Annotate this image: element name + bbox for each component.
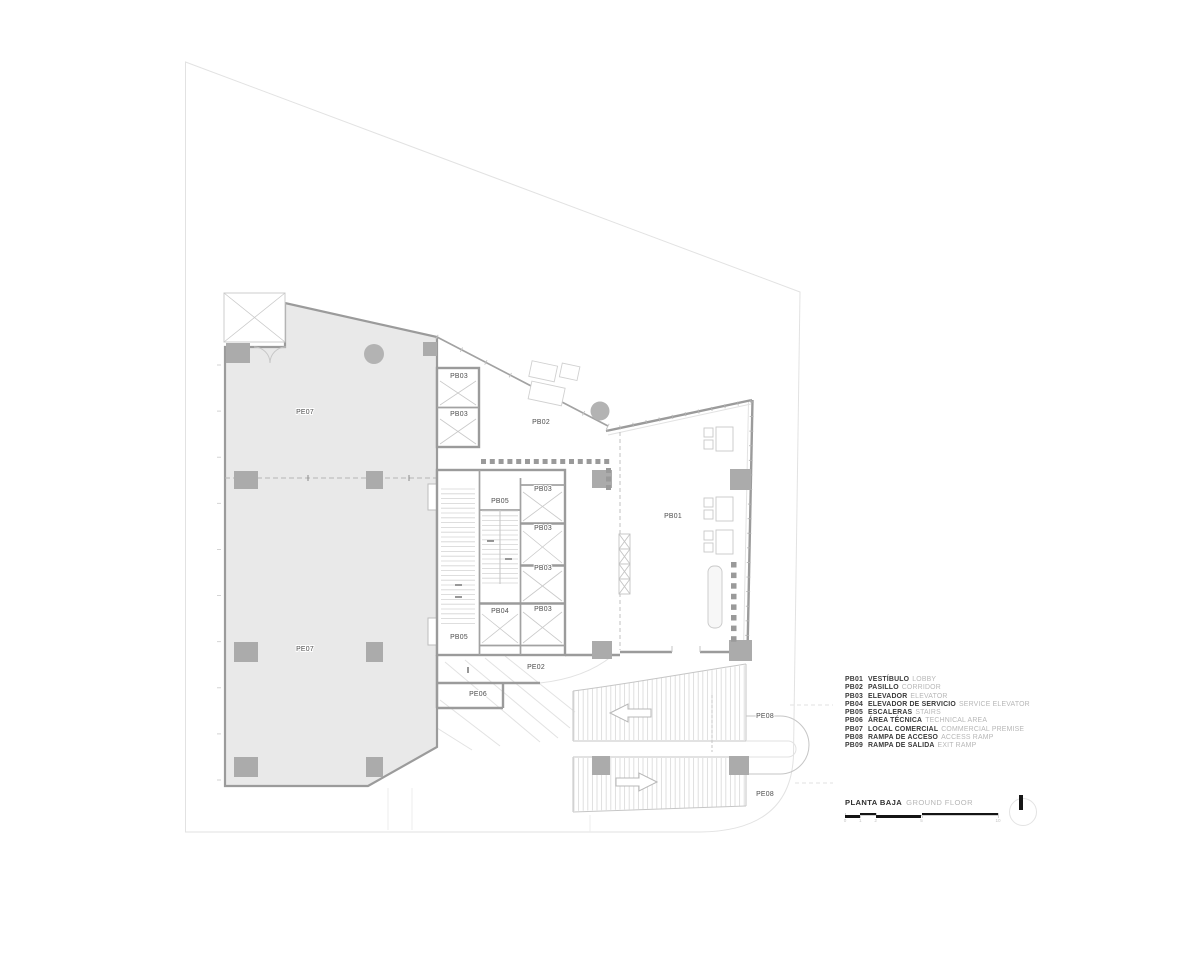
legend-term-en: COMMERCIAL PREMISE	[941, 726, 1024, 734]
room-label-pb03: PB03	[534, 525, 552, 532]
lobby-furniture-sketch	[524, 357, 609, 421]
legend-code: PB07	[845, 726, 868, 734]
scale-bar: 0 1 2 5 10	[845, 810, 1005, 824]
legend-term-es: ELEVADOR	[868, 693, 907, 701]
room-label-pb04: PB04	[491, 608, 509, 615]
legend-item: PB02PASILLOCORRIDOR	[845, 684, 1065, 692]
scale-tick-label: 10	[995, 818, 1000, 823]
room-label-pb03: PB03	[534, 486, 552, 493]
lobby-interior	[619, 427, 733, 628]
arrow-in-icon	[610, 704, 651, 722]
legend-term-en: CORRIDOR	[902, 684, 941, 692]
room-label-pb05: PB05	[491, 498, 509, 505]
planter-circle	[591, 402, 610, 421]
turnstile-strip	[619, 534, 630, 594]
legend-code: PB05	[845, 709, 868, 717]
legend-term-es: RAMPA DE SALIDA	[868, 742, 935, 750]
legend-item: PB03ELEVADORELEVATOR	[845, 693, 1065, 701]
scale-tick-label: 0	[844, 818, 847, 823]
room-label-pe08-access: PE08	[756, 713, 774, 720]
legend-code: PB06	[845, 717, 868, 725]
access-ramp-hatch	[574, 665, 744, 740]
seating-group	[704, 427, 733, 451]
seating-group	[704, 530, 733, 554]
room-label-pe06: PE06	[469, 691, 487, 698]
room-label-pb03: PB03	[450, 373, 468, 380]
sheet-title-en: GROUND FLOOR	[906, 798, 973, 807]
legend-term-en: ACCESS RAMP	[941, 734, 993, 742]
scale-tick-label: 5	[920, 818, 923, 823]
room-label-pe08-exit: PE08	[756, 791, 774, 798]
room-label-pb03: PB03	[534, 565, 552, 572]
ramp-area	[437, 656, 833, 812]
room-label-pb05: PB05	[450, 634, 468, 641]
legend-term-es: VESTÍBULO	[868, 676, 909, 684]
legend-term-en: SERVICE ELEVATOR	[959, 701, 1030, 709]
room-label-pe02: PE02	[527, 664, 545, 671]
room-label-pe07-upper: PE07	[296, 409, 314, 416]
legend-term-es: ÁREA TÉCNICA	[868, 717, 922, 725]
bench	[708, 566, 722, 628]
legend-term-en: EXIT RAMP	[938, 742, 977, 750]
sheet-title: PLANTA BAJA	[845, 798, 902, 807]
legend-code: PB09	[845, 742, 868, 750]
legend-item: PB08RAMPA DE ACCESOACCESS RAMP	[845, 734, 1065, 742]
commercial-area-pe07	[225, 303, 440, 786]
room-label-pb02: PB02	[532, 419, 550, 426]
seating-group	[704, 497, 733, 521]
legend-term-en: TECHNICAL AREA	[925, 717, 987, 725]
arrow-out-icon	[616, 773, 657, 791]
drawing-sheet: PE07 PE07 PB03 PB03 PB02 PB05 PB03 PB03 …	[0, 0, 1200, 960]
legend-code: PB01	[845, 676, 868, 684]
legend-item: PB07LOCAL COMERCIALCOMMERCIAL PREMISE	[845, 726, 1065, 734]
legend-code: PB04	[845, 701, 868, 709]
legend-code: PB08	[845, 734, 868, 742]
round-column	[364, 344, 384, 364]
legend-term-es: LOCAL COMERCIAL	[868, 726, 938, 734]
legend-term-es: ELEVADOR DE SERVICIO	[868, 701, 956, 709]
legend-term-en: ELEVATOR	[910, 693, 947, 701]
legend-item: PB04ELEVADOR DE SERVICIOSERVICE ELEVATOR	[845, 701, 1065, 709]
north-arrow-icon	[1009, 798, 1037, 826]
legend-term-en: LOBBY	[912, 676, 936, 684]
room-label-pb03: PB03	[450, 411, 468, 418]
legend-item: PB01VESTÍBULOLOBBY	[845, 676, 1065, 684]
room-label-pe07-lower: PE07	[296, 646, 314, 653]
room-label-pb01: PB01	[664, 513, 682, 520]
legend-code: PB02	[845, 684, 868, 692]
north-needle-icon	[1019, 795, 1023, 810]
room-label-pb03: PB03	[534, 606, 552, 613]
scale-tick-label: 1	[859, 818, 862, 823]
legend-code: PB03	[845, 693, 868, 701]
legend: PB01VESTÍBULOLOBBY PB02PASILLOCORRIDOR P…	[845, 676, 1065, 751]
legend-term-es: RAMPA DE ACCESO	[868, 734, 938, 742]
legend-item: PB09RAMPA DE SALIDAEXIT RAMP	[845, 742, 1065, 750]
scale-tick-label: 2	[874, 818, 877, 823]
skylight-box	[224, 293, 285, 342]
legend-item: PB06ÁREA TÉCNICATECHNICAL AREA	[845, 717, 1065, 725]
legend-term-es: PASILLO	[868, 684, 899, 692]
